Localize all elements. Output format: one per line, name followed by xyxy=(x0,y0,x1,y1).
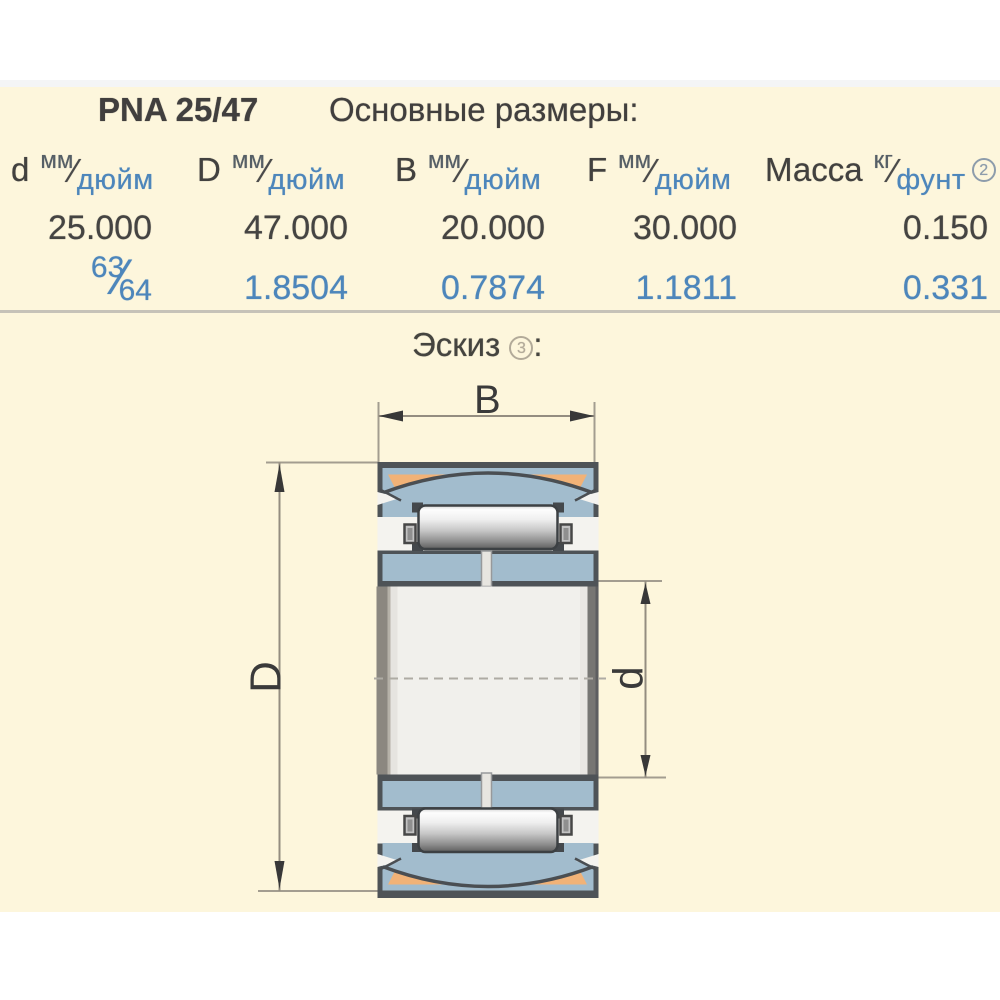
svg-text:D: D xyxy=(242,661,291,693)
svg-text:B: B xyxy=(474,378,501,422)
svg-text:d: d xyxy=(605,666,652,689)
